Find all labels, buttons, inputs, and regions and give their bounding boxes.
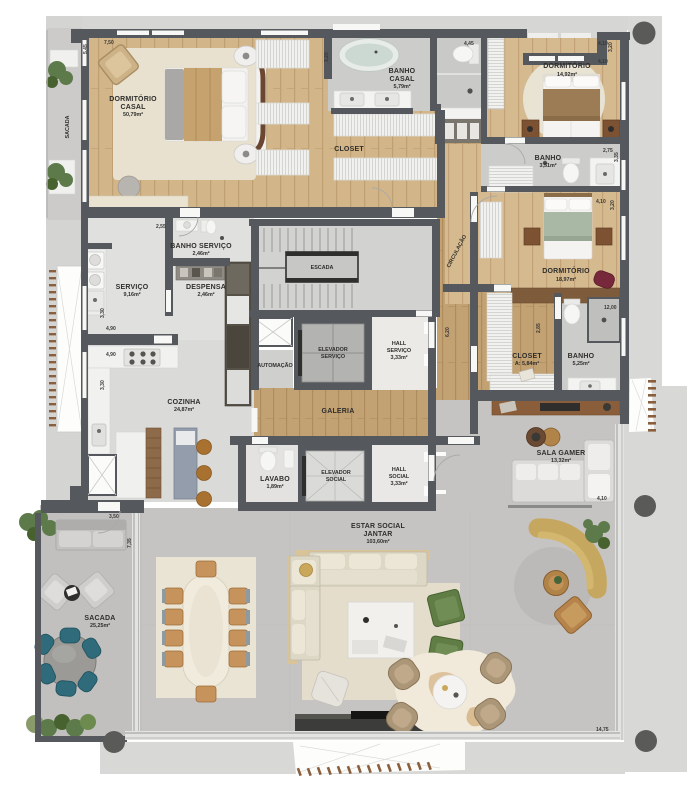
svg-text:5,45: 5,45 xyxy=(83,44,89,54)
svg-text:3,20: 3,20 xyxy=(610,200,616,210)
svg-text:13,32m²: 13,32m² xyxy=(551,458,571,464)
svg-text:5,25m²: 5,25m² xyxy=(572,361,589,367)
svg-text:7,50: 7,50 xyxy=(104,40,114,46)
svg-text:ELEVADOR: ELEVADOR xyxy=(318,347,348,353)
svg-text:3,30: 3,30 xyxy=(100,380,106,390)
svg-text:CASAL: CASAL xyxy=(389,76,415,83)
svg-text:BANHO: BANHO xyxy=(568,353,595,360)
svg-text:SERVIÇO: SERVIÇO xyxy=(321,354,345,360)
svg-text:ESTAR SOCIAL: ESTAR SOCIAL xyxy=(351,523,406,530)
svg-text:3,20: 3,20 xyxy=(324,52,330,62)
svg-text:SALA GAMER: SALA GAMER xyxy=(537,450,586,457)
svg-text:COZINHA: COZINHA xyxy=(167,399,200,406)
svg-text:4,45: 4,45 xyxy=(464,41,474,47)
svg-text:4,10: 4,10 xyxy=(598,41,608,47)
svg-text:50,79m²: 50,79m² xyxy=(123,112,143,118)
svg-text:14,75: 14,75 xyxy=(596,727,609,733)
svg-text:3,35: 3,35 xyxy=(614,152,620,162)
svg-text:5,79m²: 5,79m² xyxy=(393,84,410,90)
svg-text:25,25m²: 25,25m² xyxy=(90,623,110,629)
svg-text:DORMITÓRIO: DORMITÓRIO xyxy=(109,94,157,103)
svg-text:LAVABO: LAVABO xyxy=(260,476,290,483)
svg-text:2,85: 2,85 xyxy=(536,323,542,333)
svg-text:SOCIAL: SOCIAL xyxy=(326,477,347,483)
svg-text:ESCADA: ESCADA xyxy=(311,265,334,271)
svg-text:4,10: 4,10 xyxy=(596,199,606,205)
svg-text:CLOSET: CLOSET xyxy=(512,353,542,360)
svg-text:12,00: 12,00 xyxy=(604,305,617,311)
svg-text:1,89m²: 1,89m² xyxy=(266,484,283,490)
svg-text:DESPENSA: DESPENSA xyxy=(186,284,226,291)
svg-text:DORMITÓRIO: DORMITÓRIO xyxy=(542,266,590,275)
svg-text:4,10: 4,10 xyxy=(598,59,608,65)
svg-text:4,90: 4,90 xyxy=(106,352,116,358)
svg-text:9,16m²: 9,16m² xyxy=(123,292,140,298)
svg-text:SACADA: SACADA xyxy=(84,615,115,622)
svg-text:HALL: HALL xyxy=(392,467,407,473)
svg-text:2,46m²: 2,46m² xyxy=(192,251,209,257)
svg-text:GALERIA: GALERIA xyxy=(322,408,355,415)
svg-text:SACADA: SACADA xyxy=(65,115,71,138)
svg-text:BANHO: BANHO xyxy=(535,155,562,162)
svg-text:4,90: 4,90 xyxy=(106,326,116,332)
svg-text:DORMITÓRIO: DORMITÓRIO xyxy=(543,61,591,70)
svg-text:2,55: 2,55 xyxy=(156,224,166,230)
svg-text:SERVIÇO: SERVIÇO xyxy=(387,348,411,354)
svg-text:JANTAR: JANTAR xyxy=(363,531,392,538)
svg-text:HALL: HALL xyxy=(392,341,407,347)
svg-text:SERVIÇO: SERVIÇO xyxy=(116,284,149,291)
svg-text:SOCIAL: SOCIAL xyxy=(389,474,410,480)
svg-text:7,35: 7,35 xyxy=(127,538,133,548)
svg-text:2,75: 2,75 xyxy=(603,148,613,154)
svg-text:CASAL: CASAL xyxy=(120,104,146,111)
svg-text:ELEVADOR: ELEVADOR xyxy=(321,470,351,476)
svg-text:AUTOMAÇÃO: AUTOMAÇÃO xyxy=(257,362,293,369)
svg-text:CLOSET: CLOSET xyxy=(334,146,364,153)
svg-text:6,20: 6,20 xyxy=(445,327,451,337)
svg-text:3,51m²: 3,51m² xyxy=(539,163,556,169)
svg-text:2,46m²: 2,46m² xyxy=(197,292,214,298)
svg-text:18,97m²: 18,97m² xyxy=(556,277,576,283)
svg-text:A: 5,84m²: A: 5,84m² xyxy=(515,361,539,367)
svg-text:3,33m²: 3,33m² xyxy=(390,481,407,487)
svg-text:BANHO SERVIÇO: BANHO SERVIÇO xyxy=(170,243,232,250)
svg-text:24,87m²: 24,87m² xyxy=(174,407,194,413)
svg-text:BANHO: BANHO xyxy=(389,68,416,75)
svg-text:4,10: 4,10 xyxy=(597,496,607,502)
svg-text:3,33m²: 3,33m² xyxy=(390,355,407,361)
svg-text:14,92m²: 14,92m² xyxy=(557,72,577,78)
svg-text:3,30: 3,30 xyxy=(100,308,106,318)
svg-text:3,20: 3,20 xyxy=(608,42,614,52)
svg-text:3,50: 3,50 xyxy=(109,514,119,520)
svg-text:103,60m²: 103,60m² xyxy=(366,539,389,545)
